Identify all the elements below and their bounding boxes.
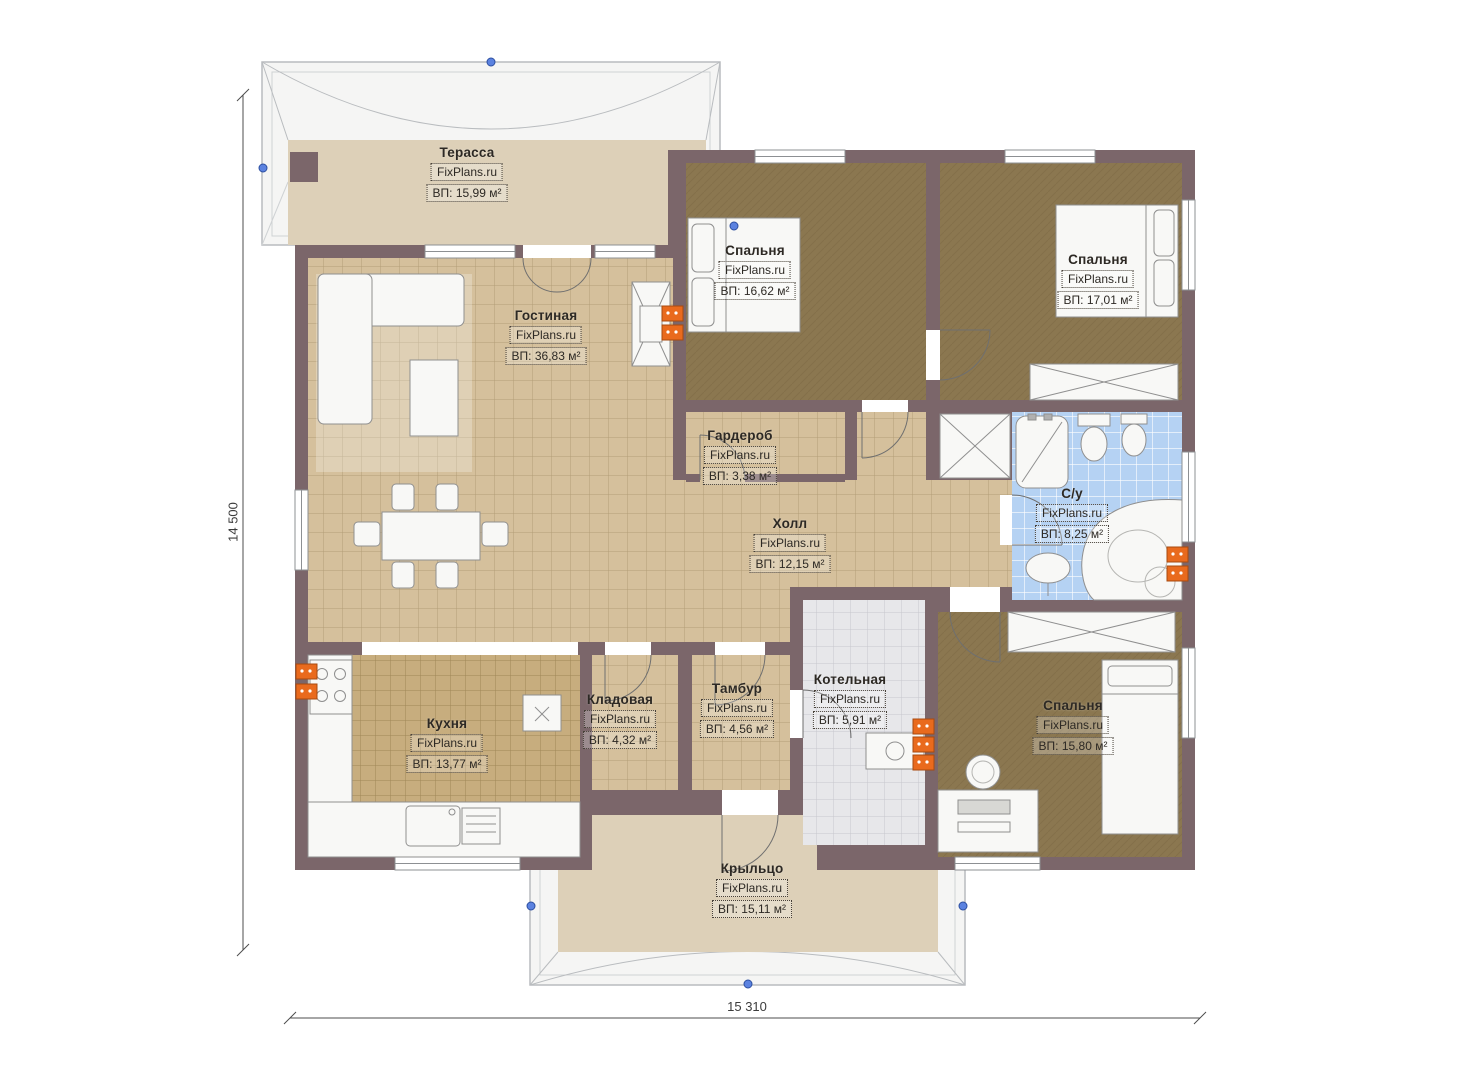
room-brand: FixPlans.ru: [719, 261, 791, 279]
window: [1182, 200, 1195, 290]
window: [425, 245, 515, 258]
room-area: ВП: 15,99 м²: [427, 184, 508, 202]
window: [1182, 452, 1195, 542]
room-brand: FixPlans.ru: [1062, 270, 1134, 288]
room-brand: FixPlans.ru: [704, 446, 776, 464]
room-area: ВП: 16,62 м²: [715, 282, 796, 300]
room-label-pantry: Кладовая FixPlans.ru ВП: 4,32 м²: [583, 692, 657, 749]
room-area: ВП: 17,01 м²: [1058, 291, 1139, 309]
grip-handle[interactable]: [527, 902, 535, 910]
room-brand: FixPlans.ru: [584, 710, 656, 728]
room-area: ВП: 4,56 м²: [700, 720, 774, 738]
room-name: Спальня: [1033, 698, 1114, 713]
room-label-wardrobe: Гардероб FixPlans.ru ВП: 3,38 м²: [703, 428, 777, 485]
floor-hall-2: [673, 587, 790, 642]
room-name: Крыльцо: [712, 861, 792, 876]
floor-hall: [673, 480, 1012, 587]
closet-bedroom-3: [1008, 612, 1175, 652]
room-label-kitchen: Кухня FixPlans.ru ВП: 13,77 м²: [407, 716, 488, 773]
room-label-porch: Крыльцо FixPlans.ru ВП: 15,11 м²: [712, 861, 792, 918]
room-name: Тамбур: [700, 681, 774, 696]
window: [1005, 150, 1095, 163]
room-area: ВП: 15,80 м²: [1033, 737, 1114, 755]
room-area: ВП: 36,83 м²: [506, 347, 587, 365]
room-brand: FixPlans.ru: [701, 699, 773, 717]
grip-handle[interactable]: [744, 980, 752, 988]
stool-bedroom-3: [966, 755, 1000, 789]
window: [595, 245, 655, 258]
window: [955, 857, 1040, 870]
room-area: ВП: 8,25 м²: [1035, 525, 1109, 543]
floor-plan-canvas: Терасса FixPlans.ru ВП: 15,99 м² Гостина…: [0, 0, 1474, 1080]
room-label-bedroom-3: Спальня FixPlans.ru ВП: 15,80 м²: [1033, 698, 1114, 755]
window: [295, 490, 308, 570]
room-area: ВП: 15,11 м²: [712, 900, 792, 918]
window: [1182, 648, 1195, 738]
closet-hall: [940, 414, 1010, 478]
room-area: ВП: 3,38 м²: [703, 467, 777, 485]
room-brand: FixPlans.ru: [431, 163, 503, 181]
floor-hall-strip: [857, 412, 926, 480]
room-label-boiler: Котельная FixPlans.ru ВП: 5,91 м²: [813, 672, 887, 729]
room-brand: FixPlans.ru: [814, 690, 886, 708]
fireplace: [632, 282, 670, 366]
room-brand: FixPlans.ru: [510, 326, 582, 344]
closet-bedroom-2: [1030, 364, 1178, 400]
floor-plan-drawing: [0, 0, 1474, 1080]
window: [395, 857, 520, 870]
grip-handle[interactable]: [959, 902, 967, 910]
room-name: Терасса: [427, 145, 508, 160]
shower-tray: [1016, 414, 1068, 488]
room-name: Гостиная: [506, 308, 587, 323]
room-brand: FixPlans.ru: [716, 879, 788, 897]
desk-bedroom-3: [938, 790, 1038, 852]
room-label-vestibule: Тамбур FixPlans.ru ВП: 4,56 м²: [700, 681, 774, 738]
grip-handle[interactable]: [259, 164, 267, 172]
room-area: ВП: 13,77 м²: [407, 755, 488, 773]
terrace-pier: [290, 152, 318, 182]
room-area: ВП: 12,15 м²: [750, 555, 831, 573]
room-name: Холл: [750, 516, 831, 531]
dimension-label-bottom: 15 310: [727, 999, 767, 1014]
bidet: [1121, 414, 1147, 456]
room-area: ВП: 4,32 м²: [583, 731, 657, 749]
window: [755, 150, 845, 163]
room-name: Кладовая: [583, 692, 657, 707]
room-label-living: Гостиная FixPlans.ru ВП: 36,83 м²: [506, 308, 587, 365]
heater-boiler: [913, 719, 934, 770]
dimension-label-left: 14 500: [226, 502, 241, 542]
room-name: Котельная: [813, 672, 887, 687]
grip-handle[interactable]: [730, 222, 738, 230]
coffee-table: [410, 360, 458, 436]
room-label-bathroom: С/у FixPlans.ru ВП: 8,25 м²: [1035, 486, 1109, 543]
room-brand: FixPlans.ru: [1036, 504, 1108, 522]
room-label-bedroom-2: Спальня FixPlans.ru ВП: 17,01 м²: [1058, 252, 1139, 309]
room-name: Спальня: [1058, 252, 1139, 267]
room-name: С/у: [1035, 486, 1109, 501]
kitchen-sink: [406, 806, 500, 846]
room-label-hall: Холл FixPlans.ru ВП: 12,15 м²: [750, 516, 831, 573]
fridge: [523, 695, 561, 731]
grip-handle[interactable]: [487, 58, 495, 66]
room-name: Кухня: [407, 716, 488, 731]
room-name: Гардероб: [703, 428, 777, 443]
room-brand: FixPlans.ru: [411, 734, 483, 752]
room-brand: FixPlans.ru: [1037, 716, 1109, 734]
room-name: Спальня: [715, 243, 796, 258]
opening-kitchen: [362, 642, 578, 655]
room-area: ВП: 5,91 м²: [813, 711, 887, 729]
room-label-terrace: Терасса FixPlans.ru ВП: 15,99 м²: [427, 145, 508, 202]
room-brand: FixPlans.ru: [754, 534, 826, 552]
room-label-bedroom-1: Спальня FixPlans.ru ВП: 16,62 м²: [715, 243, 796, 300]
